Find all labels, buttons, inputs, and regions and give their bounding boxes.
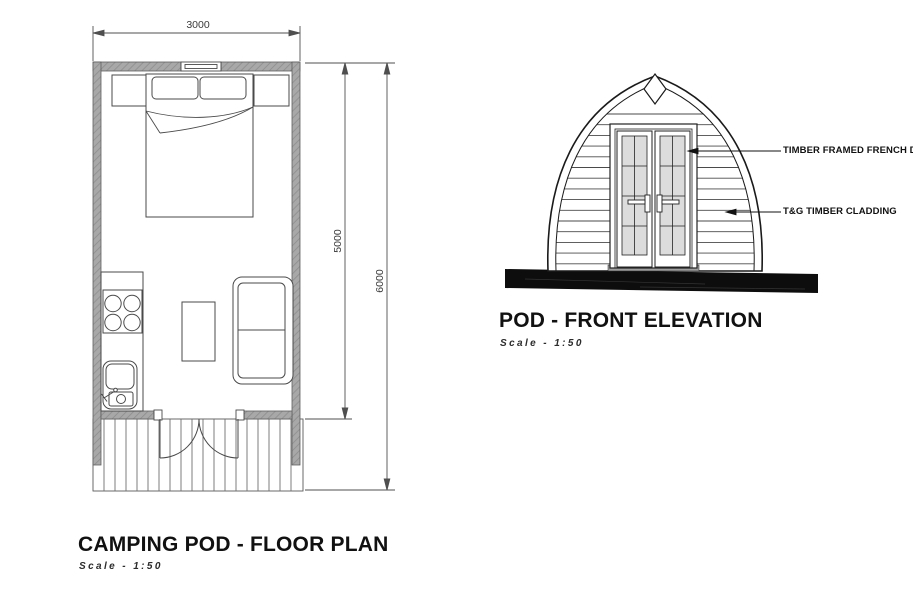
french-doors bbox=[608, 124, 699, 271]
dimension-pod-length-label: 5000 bbox=[332, 221, 344, 261]
architectural-drawing-sheet: 3000 5000 6000 TIMBER FRAMED FRENCH DOOR… bbox=[0, 0, 913, 602]
glazing-right bbox=[660, 136, 685, 255]
ground bbox=[505, 269, 818, 293]
glazing-left bbox=[622, 136, 647, 255]
pillow-left bbox=[152, 77, 198, 99]
rear-window bbox=[181, 62, 221, 71]
hob bbox=[103, 290, 142, 333]
floor-plan-title: CAMPING POD - FLOOR PLAN bbox=[78, 533, 388, 557]
bedside-table-left bbox=[112, 75, 146, 106]
floor-plan-drawing bbox=[93, 26, 395, 491]
drawing-linework bbox=[0, 0, 913, 602]
elevation-scale-note: Scale - 1:50 bbox=[500, 338, 584, 349]
coffee-table bbox=[182, 302, 215, 361]
front-elevation-drawing bbox=[505, 74, 818, 293]
dimension-width-label: 3000 bbox=[176, 19, 220, 31]
annotation-french-door: TIMBER FRAMED FRENCH DOOR bbox=[783, 145, 913, 156]
door-jambs bbox=[154, 410, 244, 420]
bedside-table-right bbox=[254, 75, 289, 106]
annotation-cladding: T&G TIMBER CLADDING bbox=[783, 206, 897, 217]
sofa bbox=[233, 277, 293, 384]
elevation-title: POD - FRONT ELEVATION bbox=[499, 309, 763, 333]
dimension-total-length-label: 6000 bbox=[374, 261, 386, 301]
pillow-right bbox=[200, 77, 246, 99]
sink-unit bbox=[102, 361, 138, 409]
furniture bbox=[101, 74, 293, 411]
floor-plan-scale-note: Scale - 1:50 bbox=[79, 561, 163, 572]
